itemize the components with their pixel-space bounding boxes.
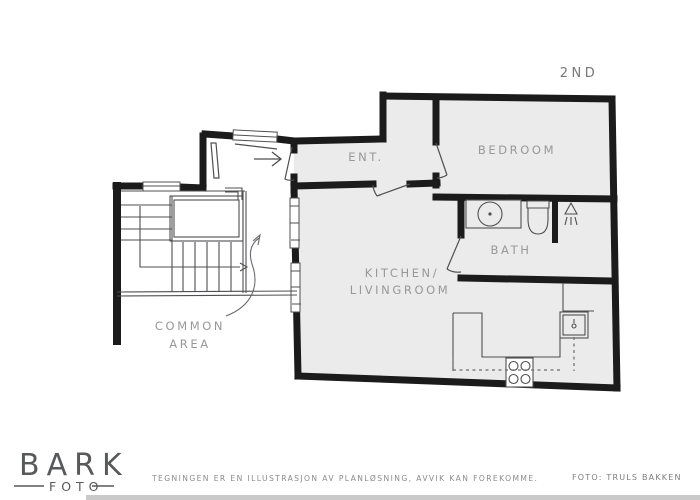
- window-kitchen-lower: [291, 263, 301, 312]
- window-kitchen-upper: [290, 198, 300, 248]
- ent-label: ENT.: [348, 150, 384, 164]
- wall-ent-top: [294, 139, 383, 141]
- landing-corner-trim: [225, 188, 242, 200]
- bath-label: BATH: [491, 243, 532, 257]
- floor-label: 2ND: [560, 66, 599, 81]
- bottom-scrollbar[interactable]: [86, 495, 700, 500]
- bedroom-label: BEDROOM: [478, 143, 556, 157]
- common-area-label-line1: COMMON: [155, 319, 225, 333]
- bark-foto-logo: BARK FOTO: [14, 448, 129, 494]
- entrance-door-open-leaf: [235, 144, 277, 149]
- disclaimer-text: TEGNINGEN ER EN ILLUSTRASJON AV PLANLØSN…: [151, 474, 538, 483]
- toilet-icon: [527, 201, 549, 234]
- stair-treads-upper: [121, 205, 172, 240]
- kitchen-label-line2: LIVINGROOM: [350, 283, 451, 297]
- common-landing-edge: [117, 291, 297, 296]
- stair-void-inner: [174, 200, 239, 237]
- wall-landing-top: [205, 134, 233, 136]
- wall-stairs-top-right: [180, 187, 203, 188]
- photo-credit-text: FOTO: TRULS BAKKEN: [572, 473, 682, 482]
- wall-bath-bottom: [461, 278, 614, 281]
- window-landing: [233, 130, 277, 142]
- common-area-label-line2: AREA: [169, 337, 210, 351]
- wall-ent-bottom: [294, 184, 373, 186]
- bath-sink-icon: [466, 200, 521, 228]
- windows: [143, 130, 301, 312]
- wall-right: [612, 99, 617, 388]
- stove-icon: [506, 358, 533, 387]
- common-area-door-leaf: [211, 143, 219, 178]
- stair-void-outer: [170, 196, 243, 241]
- entry-arrow: [254, 152, 281, 166]
- logo-main-text: BARK: [19, 448, 129, 483]
- stairs: [117, 188, 297, 296]
- wall-landing-top-right: [277, 139, 294, 141]
- kitchen-label-line1: KITCHEN/: [365, 266, 440, 280]
- footer: TEGNINGEN ER EN ILLUSTRASJON AV PLANLØSN…: [151, 473, 682, 483]
- floorplan-canvas: 2ND ENT. BEDROOM BATH KITCHEN/ LIVINGROO…: [0, 0, 700, 500]
- window-stairs: [143, 182, 180, 191]
- floorplan-page: 2ND ENT. BEDROOM BATH KITCHEN/ LIVINGROO…: [0, 0, 700, 500]
- wall-top: [383, 96, 612, 99]
